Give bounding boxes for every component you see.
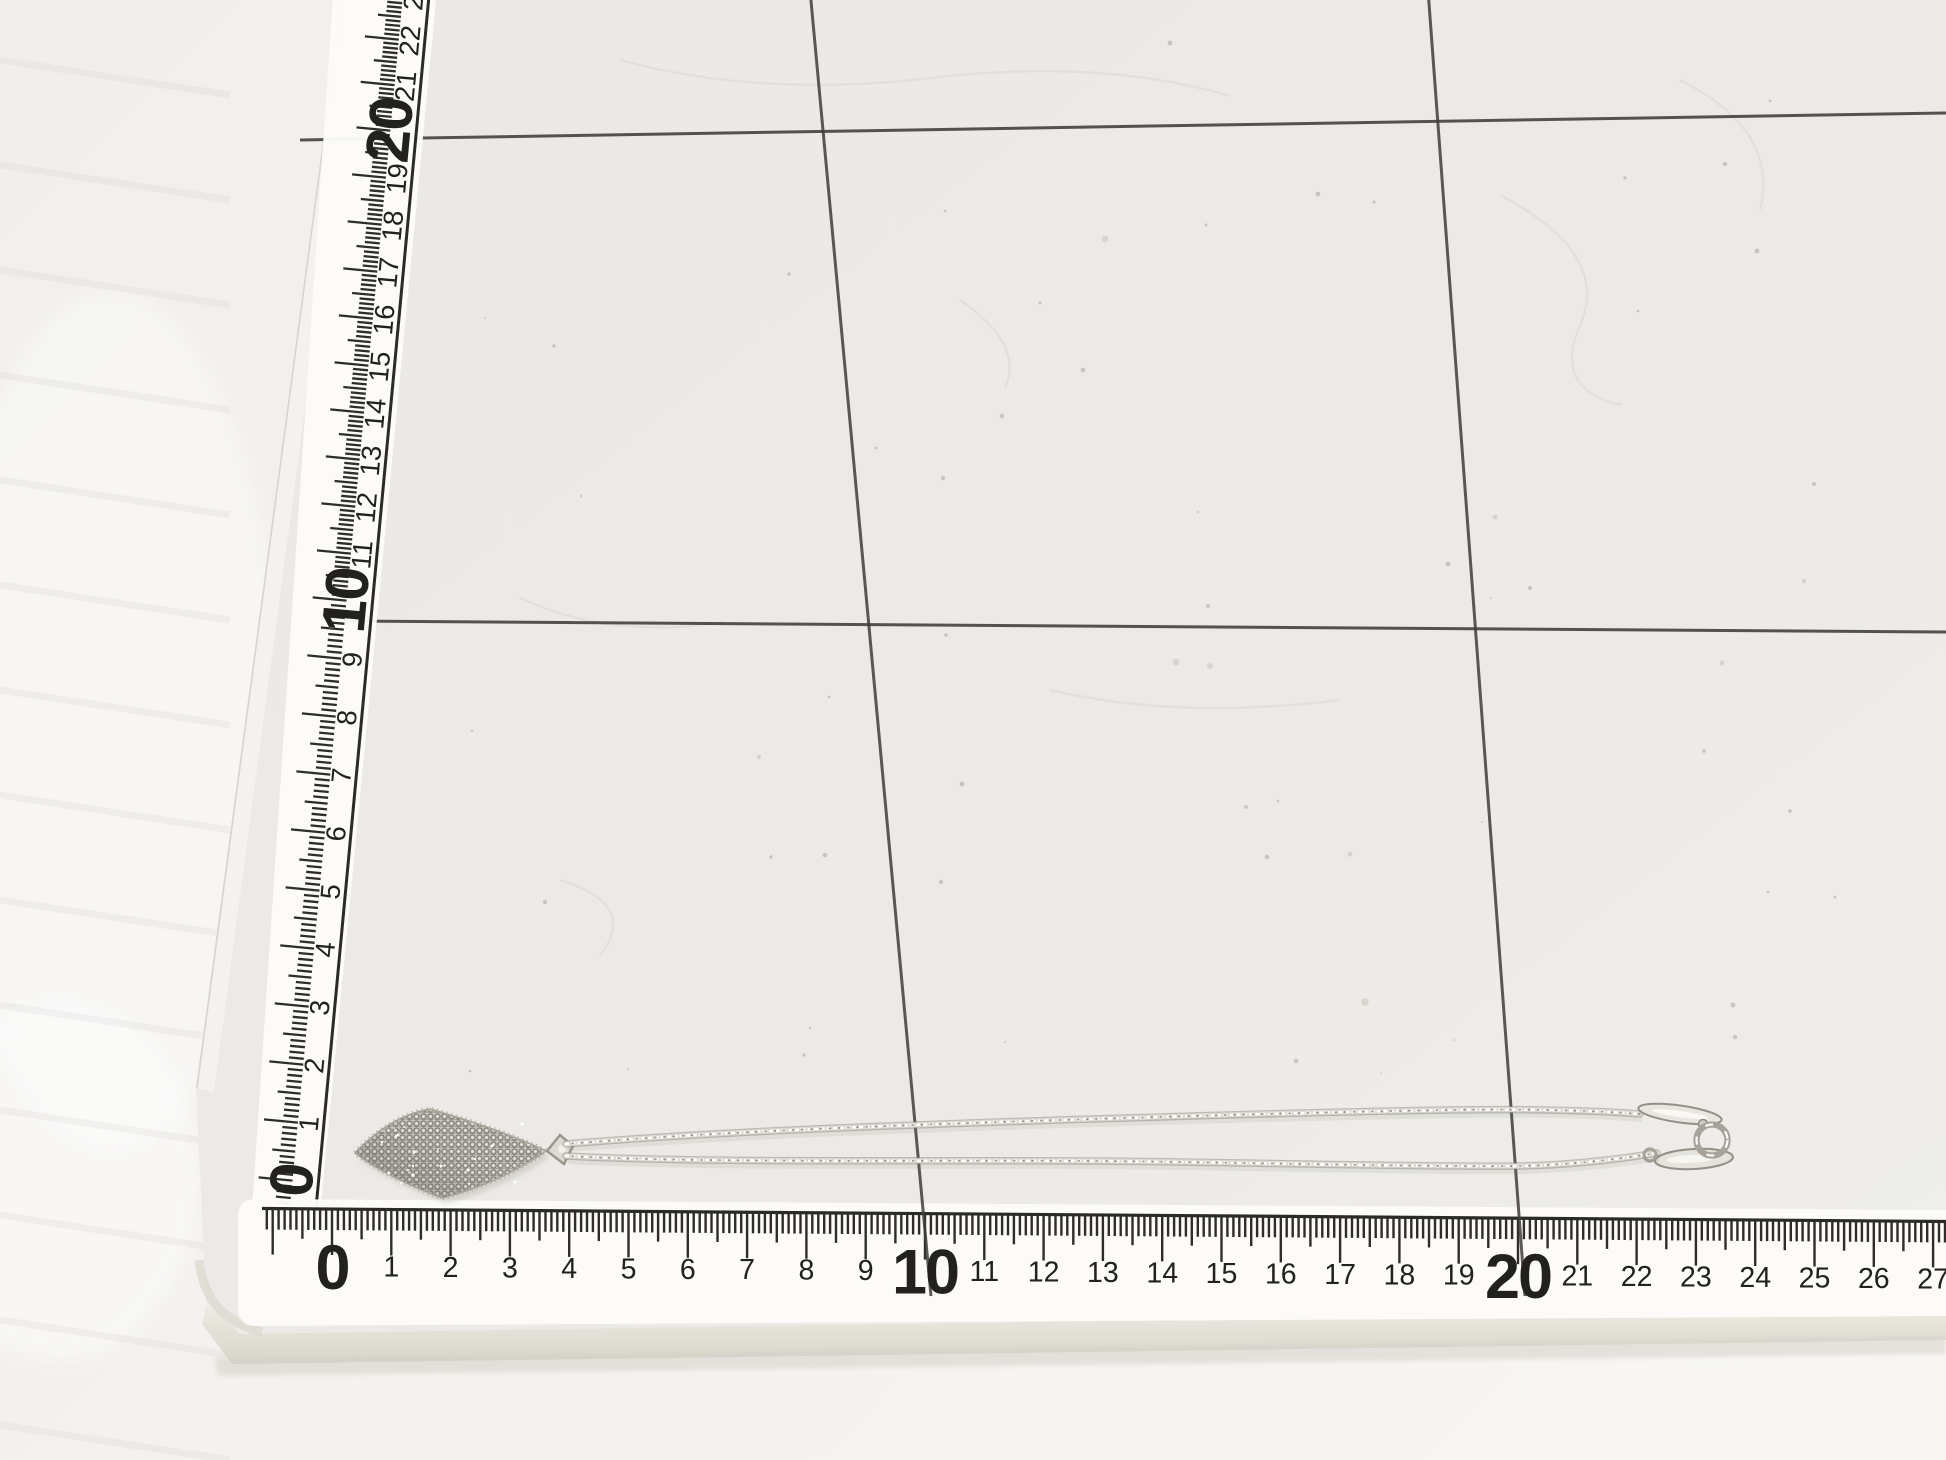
bottom-ruler-number: 12 [1028,1257,1060,1289]
left-ruler-number: 11 [345,539,379,570]
left-ruler-number: 18 [376,209,410,242]
bottom-ruler-number: 13 [1087,1257,1119,1289]
left-ruler-number: 12 [349,491,383,524]
left-ruler-number: 19 [380,162,414,195]
left-ruler-number: 0 [256,1161,327,1199]
bottom-ruler-number: 5 [621,1253,637,1285]
bottom-ruler-number: 16 [1265,1258,1297,1290]
bottom-ruler-number: 1 [383,1252,399,1284]
left-ruler-number: 17 [371,256,405,289]
bottom-ruler-number: 7 [739,1254,755,1286]
measurement-photo: 0123456789101112131415161718192021222301… [0,0,1946,1460]
bottom-ruler-number: 6 [680,1254,696,1286]
left-ruler-number: 9 [336,651,368,669]
bottom-ruler-number: 14 [1146,1257,1178,1289]
bottom-ruler-number: 15 [1206,1258,1238,1290]
bottom-ruler-number: 4 [561,1253,577,1285]
bottom-ruler-number: 3 [502,1252,518,1284]
bottom-ruler-number: 27 [1917,1263,1946,1295]
bottom-ruler-number: 20 [1485,1242,1551,1312]
left-ruler-number: 21 [389,69,423,102]
bottom-ruler-number: 25 [1799,1263,1831,1295]
bottom-ruler-number: 26 [1858,1263,1890,1295]
bottom-ruler-number: 10 [892,1238,958,1308]
left-ruler-number: 7 [325,767,357,785]
bottom-ruler-number: 0 [315,1233,348,1303]
bottom-ruler-number: 24 [1739,1262,1771,1294]
bottom-ruler-number: 2 [443,1252,459,1284]
left-ruler-number: 16 [367,303,401,336]
left-ruler-number: 10 [309,566,383,636]
bottom-ruler-number: 8 [798,1255,814,1287]
left-ruler-number: 15 [363,350,397,383]
left-ruler-number: 13 [354,444,388,477]
left-ruler-number: 3 [303,999,335,1017]
left-ruler-number: 14 [358,397,392,430]
left-ruler-number: 22 [393,24,427,57]
left-ruler-number: 4 [309,941,341,959]
left-ruler-number: 6 [320,825,352,843]
bottom-ruler-number: 11 [970,1256,1000,1288]
bottom-ruler-number: 9 [858,1255,874,1287]
left-ruler-number: 23 [397,0,431,12]
bottom-ruler-number: 21 [1561,1261,1593,1293]
photo-canvas: 0123456789101112131415161718192021222301… [0,0,1946,1460]
bottom-ruler-number: 22 [1621,1261,1653,1293]
left-ruler-number: 2 [298,1057,330,1075]
bottom-ruler-number: 19 [1443,1260,1475,1292]
left-ruler-number: 5 [314,883,346,901]
left-ruler-number: 20 [352,96,426,166]
bottom-ruler-number: 18 [1384,1259,1416,1291]
left-ruler-number: 1 [293,1115,325,1133]
left-ruler-number: 8 [331,709,363,727]
bottom-ruler-number: 17 [1324,1259,1356,1291]
bottom-ruler-number: 23 [1680,1262,1712,1294]
